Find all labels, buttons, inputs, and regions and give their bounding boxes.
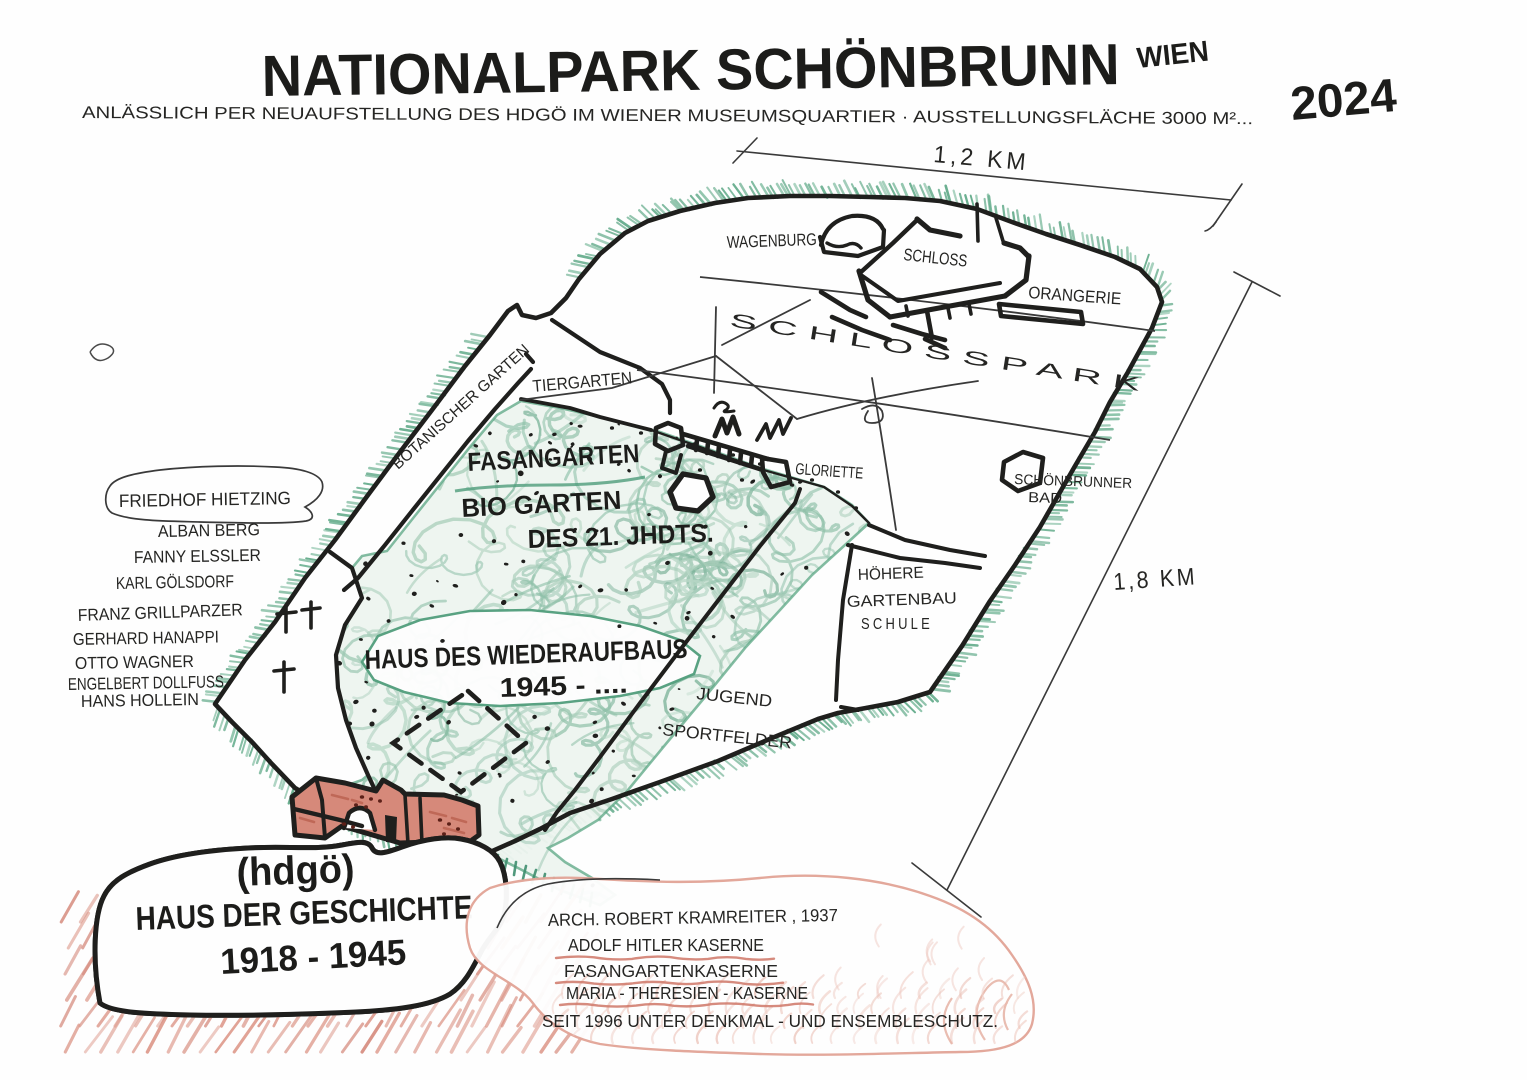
- svg-text:WAGENBURG: WAGENBURG: [726, 230, 817, 252]
- svg-text:(hdgö): (hdgö): [236, 847, 355, 895]
- svg-text:KARL GÖLSDORF: KARL GÖLSDORF: [116, 572, 234, 593]
- svg-text:MARIA - THERESIEN - KASERNE: MARIA - THERESIEN - KASERNE: [566, 983, 808, 1003]
- svg-text:SEIT 1996 UNTER DENKMAL - UND: SEIT 1996 UNTER DENKMAL - UND ENSEMBLESC…: [542, 1011, 998, 1031]
- svg-text:HÖHERE: HÖHERE: [858, 564, 925, 584]
- svg-text:NATIONALPARK SCHÖNBRUNN: NATIONALPARK SCHÖNBRUNN: [261, 32, 1120, 109]
- svg-text:FRIEDHOF HIETZING: FRIEDHOF HIETZING: [119, 488, 291, 511]
- svg-text:ADOLF HITLER KASERNE: ADOLF HITLER KASERNE: [568, 935, 764, 955]
- svg-text:2024: 2024: [1288, 68, 1398, 130]
- svg-text:ALBAN BERG: ALBAN BERG: [158, 520, 260, 541]
- svg-text:SCHULE: SCHULE: [861, 616, 933, 633]
- svg-text:GERHARD HANAPPI: GERHARD HANAPPI: [73, 627, 219, 649]
- svg-text:FASANGARTENKASERNE: FASANGARTENKASERNE: [564, 961, 778, 981]
- svg-text:FANNY ELSSLER: FANNY ELSSLER: [134, 546, 261, 567]
- svg-text:OTTO WAGNER: OTTO WAGNER: [75, 652, 194, 673]
- svg-text:HANS HOLLEIN: HANS HOLLEIN: [81, 690, 199, 711]
- svg-text:1945 - ....: 1945 - ....: [499, 669, 628, 703]
- svg-text:BAD: BAD: [1028, 490, 1063, 507]
